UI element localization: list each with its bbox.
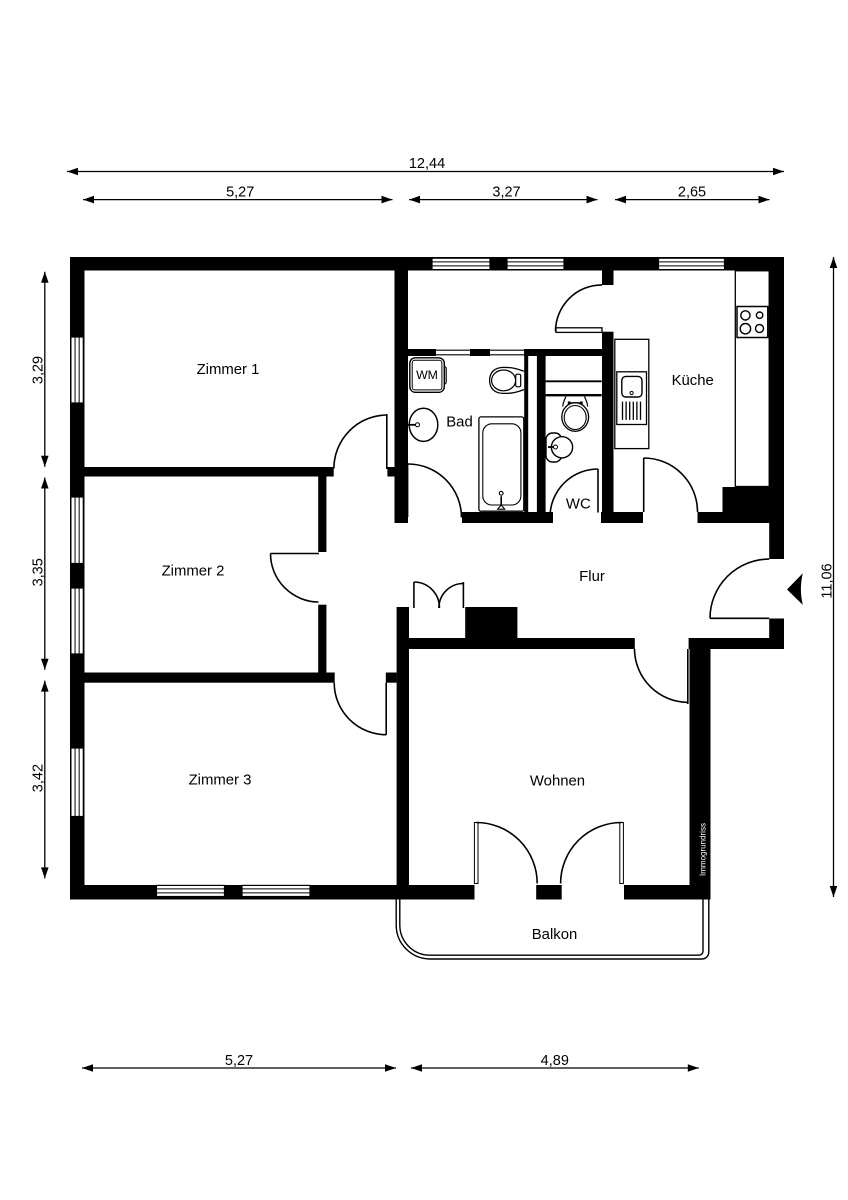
svg-text:Immogrundriss: Immogrundriss — [699, 823, 708, 876]
svg-text:WC: WC — [566, 497, 591, 513]
svg-text:3,27: 3,27 — [492, 185, 520, 201]
svg-text:3,29: 3,29 — [30, 356, 46, 384]
svg-text:4,89: 4,89 — [541, 1053, 569, 1069]
svg-text:Zimmer 1: Zimmer 1 — [197, 362, 260, 378]
svg-text:WM: WM — [416, 368, 438, 382]
svg-text:5,27: 5,27 — [226, 185, 254, 201]
svg-text:3,35: 3,35 — [30, 558, 46, 586]
svg-text:Zimmer 2: Zimmer 2 — [162, 564, 225, 580]
svg-text:Flur: Flur — [579, 569, 605, 585]
svg-text:Zimmer 3: Zimmer 3 — [189, 773, 252, 789]
svg-text:Wohnen: Wohnen — [530, 774, 585, 790]
svg-text:12,44: 12,44 — [409, 156, 445, 172]
svg-text:11,06: 11,06 — [819, 563, 835, 598]
svg-text:Bad: Bad — [446, 415, 473, 431]
svg-text:3,42: 3,42 — [30, 764, 46, 792]
svg-text:Balkon: Balkon — [532, 927, 578, 943]
svg-text:5,27: 5,27 — [225, 1053, 253, 1069]
svg-text:2,65: 2,65 — [678, 185, 706, 201]
svg-text:Küche: Küche — [672, 373, 714, 389]
